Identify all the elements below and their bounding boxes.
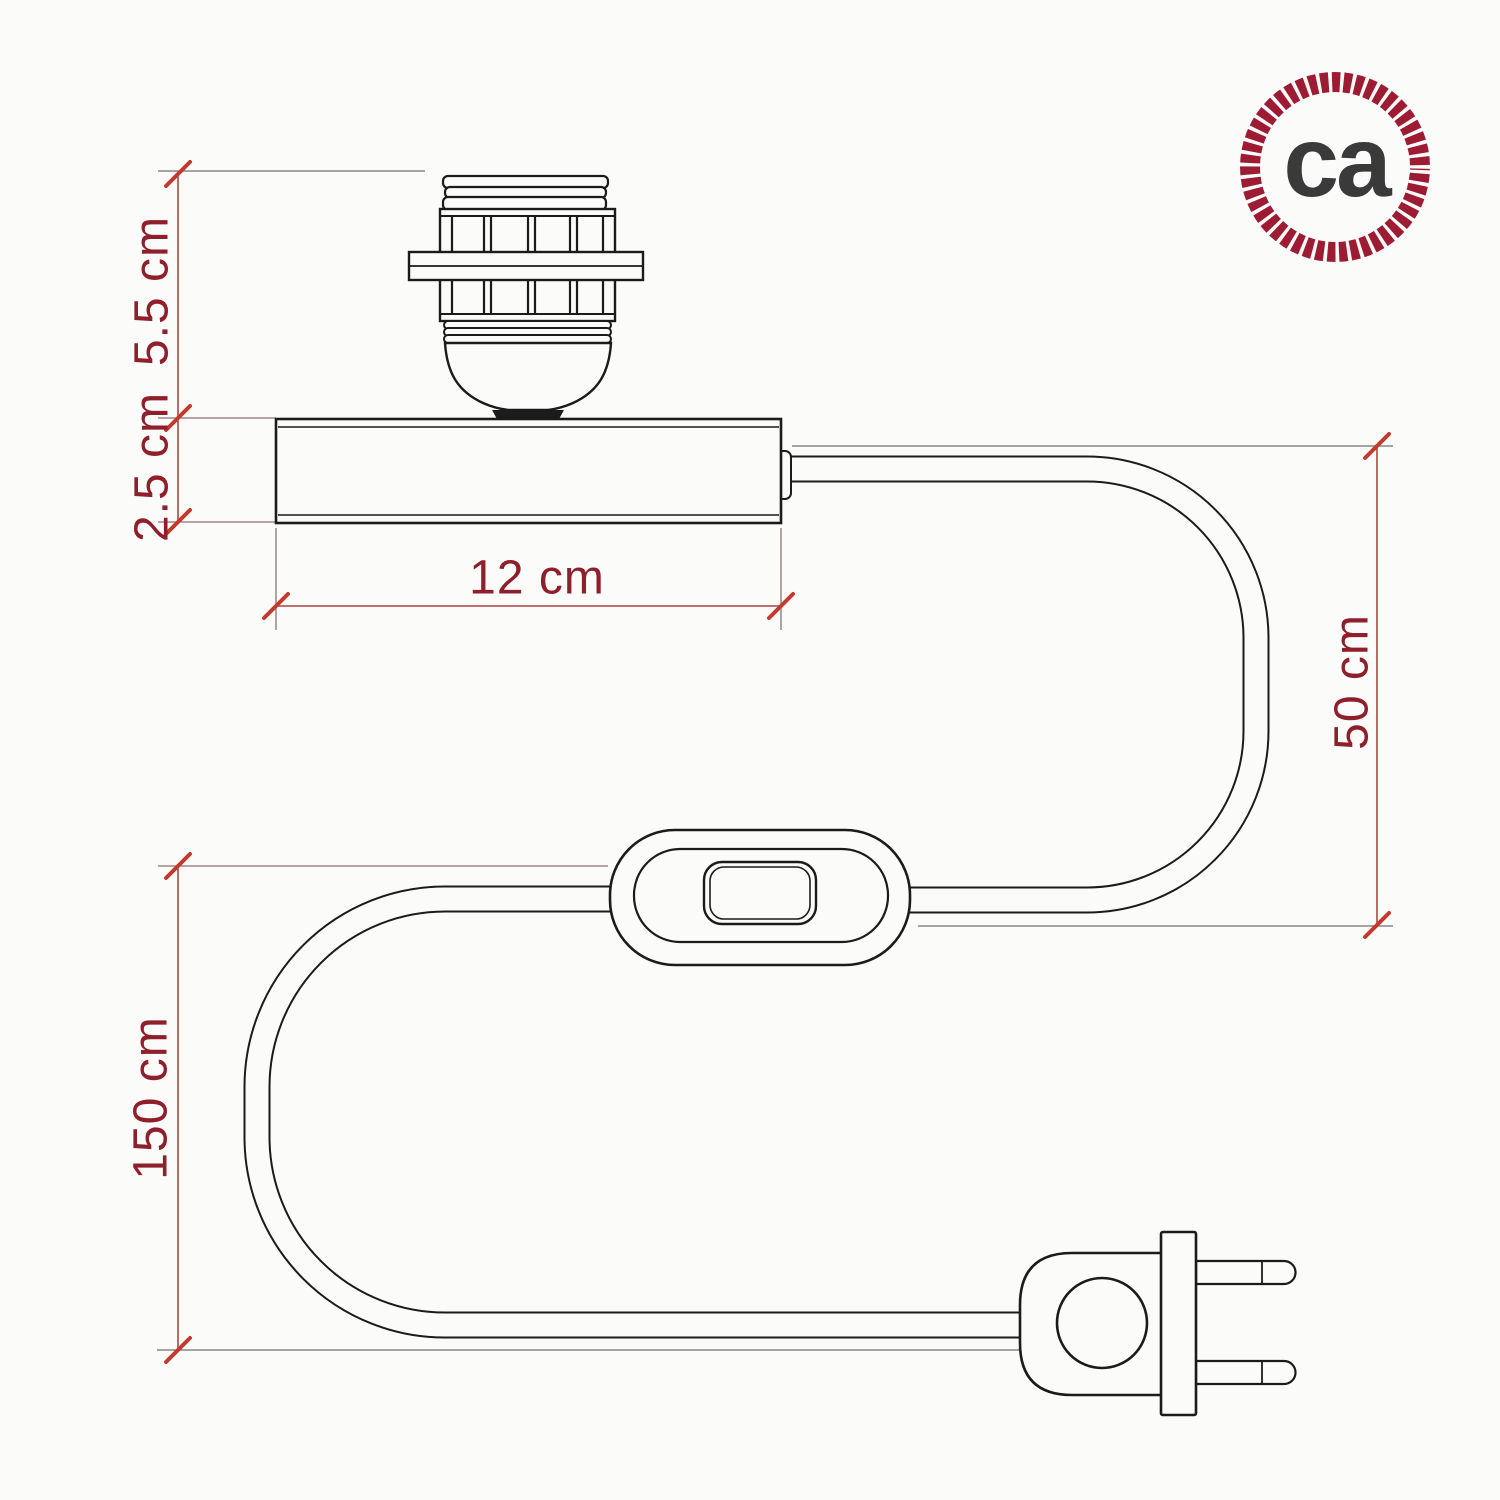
- dimension-labels: 5.5 cm 2.5 cm 12 cm 50 cm 150 cm: [125, 216, 1379, 1180]
- lamp-dimension-diagram: 5.5 cm 2.5 cm 12 cm 50 cm 150 cm: [0, 0, 1500, 1500]
- socket-thread-bottom: [444, 321, 611, 343]
- lamp-socket: [409, 176, 643, 419]
- cable-150cm-label: 150 cm: [125, 1016, 178, 1179]
- cable-50cm-label: 50 cm: [1326, 614, 1379, 750]
- logo-text: ca: [1283, 106, 1393, 218]
- socket-thread-top: [443, 176, 608, 210]
- power-plug: [1020, 1232, 1296, 1415]
- base-width-label: 12 cm: [469, 552, 605, 605]
- lamp-base: [276, 419, 791, 523]
- socket-bowl: [445, 343, 611, 410]
- socket-height-label: 5.5 cm: [126, 216, 179, 366]
- switch-button: [704, 862, 816, 924]
- dimension-ticks: [166, 162, 1389, 1362]
- brand-logo: ca: [1247, 79, 1423, 255]
- shade-ring: [409, 252, 643, 280]
- plug-face-plate: [1161, 1232, 1196, 1415]
- socket-foot: [492, 410, 564, 419]
- base-height-label: 2.5 cm: [126, 392, 179, 542]
- plug-prong-top: [1196, 1261, 1296, 1284]
- extension-lines: [157, 171, 1393, 1350]
- power-cable-switch-to-plug: [257, 899, 1022, 1325]
- inline-switch: [610, 830, 910, 965]
- diagram-svg: 5.5 cm 2.5 cm 12 cm 50 cm 150 cm: [0, 0, 1500, 1500]
- dimension-lines: [178, 174, 1377, 1350]
- plug-body: [1020, 1253, 1162, 1395]
- plug-prong-bottom: [1196, 1361, 1296, 1384]
